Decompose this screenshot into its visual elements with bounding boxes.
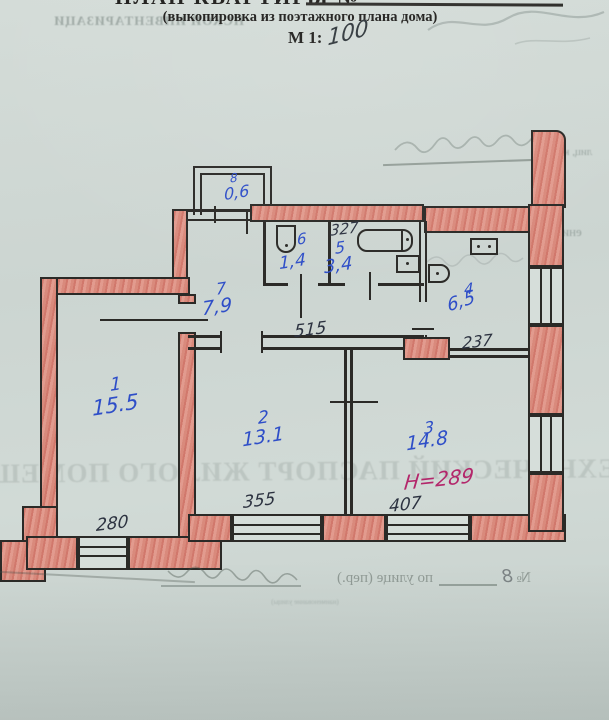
- wall-red-room1-right: [178, 332, 196, 538]
- wall-segment: [263, 283, 288, 286]
- window-room1: [78, 536, 128, 570]
- toilet-icon: [276, 225, 296, 253]
- room1-area: 15.5: [92, 391, 139, 420]
- bleed-street-underline: [161, 585, 301, 587]
- wall-red-left-exterior: [40, 277, 58, 509]
- wall-segment: [447, 355, 530, 358]
- wall-segment: [186, 209, 250, 212]
- wall-segment: [378, 283, 424, 286]
- room4-area: 6,5: [446, 289, 476, 316]
- bleed-through-document-title: ТЕХНИЧЕСКИЙ ПАСПОРТ ЖИЛОГО ПОМЕЩЕНИ: [0, 453, 609, 490]
- wall-red-room1-right: [178, 294, 196, 304]
- wall-red-top-band: [250, 204, 424, 222]
- door-tick-bath: [369, 272, 371, 300]
- room3-area: 14.8: [406, 429, 448, 455]
- page-subtitle: (выкопировка из поэтажного плана дома): [135, 9, 465, 26]
- wall-segment: [188, 335, 222, 338]
- window-room3-right: [528, 415, 564, 473]
- dimension-bath: 327: [330, 220, 359, 239]
- window-room3: [386, 514, 470, 542]
- wall-red-hall-left: [172, 209, 188, 280]
- wall-red-right-exterior: [528, 204, 564, 267]
- door-tick: [220, 331, 222, 353]
- door-tick: [261, 331, 263, 353]
- bathtub-icon: [357, 229, 413, 252]
- toilet-dot: [285, 244, 288, 247]
- room7-area: 7,9: [202, 296, 232, 320]
- closet-door-tick: [246, 212, 248, 234]
- photo-shading-overlay: [0, 0, 609, 720]
- bleed-through-scribble-top-right: [420, 2, 609, 57]
- dimension-room3: 407: [389, 495, 422, 516]
- room8-area: 0,6: [224, 183, 249, 203]
- wall-red-room1-bottom-pier: [26, 536, 78, 570]
- room6-number: 6: [297, 231, 307, 248]
- bathtub-divider: [401, 231, 403, 250]
- dimension-kitchen: 237: [462, 332, 493, 352]
- sink-dot: [406, 262, 409, 265]
- wall-segment: [186, 219, 250, 222]
- window-kitchen: [528, 267, 564, 325]
- dimension-room1: 280: [96, 514, 129, 535]
- window-room2: [232, 514, 322, 542]
- wall-red-kitchen-top: [424, 206, 534, 233]
- wall-red-room1-top: [40, 277, 190, 295]
- wall-segment: [188, 347, 222, 350]
- door-tick: [214, 206, 216, 223]
- wall-red-right-exterior: [528, 325, 564, 415]
- room6-area: 1,4: [279, 252, 306, 273]
- dimension-hall: 515: [294, 320, 327, 341]
- wall-segment: [262, 347, 424, 350]
- door-swing-line-room1: [100, 319, 208, 321]
- wall-wc-left: [263, 221, 266, 285]
- bleed-blank-line: [439, 584, 497, 586]
- wall-segment: [318, 283, 345, 286]
- room2-area: 13.1: [242, 425, 284, 451]
- door-tick-kitchen: [412, 328, 434, 330]
- door-swing-line-wc: [300, 274, 302, 318]
- wall-red-bottom-pier: [322, 514, 386, 542]
- wall-red-right-exterior: [528, 473, 564, 532]
- wall-red-top-right-stack: [531, 130, 566, 208]
- scale-label: М 1:: [288, 28, 322, 48]
- bleed-no-sign: №: [517, 570, 531, 587]
- wall-room2-room3: [350, 350, 353, 514]
- wall-room2-room3: [344, 350, 347, 514]
- bleed-through-bottom-line: № 8 по улице (пер.): [0, 566, 609, 596]
- bleed-street-label: по улице (пер.): [337, 570, 433, 587]
- bleed-no-value-handwritten: 8: [502, 566, 513, 587]
- scanned-floor-plan-page: НСКОЙ ИНВЕНТАРИЗАЦИ ПЛАН КВАРТИРЫ № (вык…: [0, 0, 609, 720]
- wall-red-bottom-pier: [188, 514, 232, 542]
- built-in-closet-red: [403, 337, 450, 360]
- bleed-caption-tiny: (наименование улицы): [210, 598, 400, 606]
- wall-segment: [262, 335, 424, 338]
- room5-area: 3,4: [324, 255, 353, 278]
- door-cross-room2-room3: [330, 401, 378, 403]
- bleed-through-scribble-kitchen: [425, 248, 525, 273]
- dimension-room2: 355: [243, 491, 276, 512]
- bathtub-dot: [406, 238, 409, 241]
